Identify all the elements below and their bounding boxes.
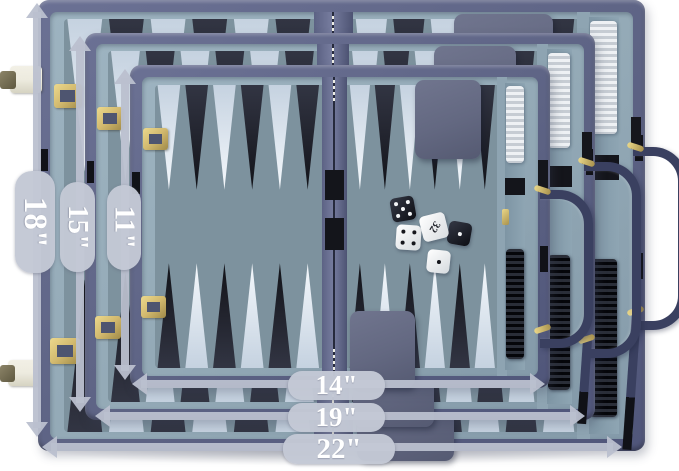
dimension-label-19-inch: 19": [288, 403, 385, 432]
die-white-4-pip-3: [400, 241, 404, 245]
small-right-bottom-point-4: [423, 263, 446, 368]
dimension-label-text: 22": [316, 435, 361, 464]
die-black-5-pip-2: [405, 200, 410, 205]
small-hinge-stitch-top: [333, 80, 335, 104]
exterior-latch-top-tip-icon: [0, 71, 16, 89]
small-left-top-point-5: [267, 85, 293, 190]
dimension-label-11-inch: 11": [107, 185, 141, 270]
die-white-4-pip-1: [401, 229, 405, 233]
die-white-4-pip-2: [413, 230, 417, 234]
dimension-label-text: 15": [63, 204, 92, 249]
die-white-4: [395, 224, 422, 251]
small-hinge-strap-1: [325, 170, 345, 200]
dimension-label-18-inch: 18": [15, 171, 55, 273]
small-left-bottom-point-5: [267, 263, 293, 368]
small-black-checkers-stack: [506, 249, 524, 358]
doubling-cube-value: 32: [426, 219, 442, 235]
dimension-label-text: 19": [316, 404, 358, 431]
small-right-bottom-point-5: [448, 263, 471, 368]
dimension-label-14-inch: 14": [288, 371, 385, 400]
small-left-bottom-point-2: [184, 263, 210, 368]
die-black-1: [446, 220, 473, 247]
die-white-4-pip-4: [412, 242, 416, 246]
small-left-bottom-point-4: [239, 263, 265, 368]
small-compartment-clasp-icon: [502, 209, 509, 225]
backgammon-sets-product-photo: 32: [0, 0, 679, 471]
die-black-5-pip-3: [401, 207, 406, 212]
dimension-label-15-inch: 15": [60, 182, 95, 272]
die-black-5: [389, 195, 417, 223]
medium-latch-buckle-hole: [101, 322, 115, 333]
small-hinge-strap-2: [325, 218, 345, 251]
small-left-bottom-point-3: [212, 263, 238, 368]
small-case: [130, 65, 550, 388]
small-right-top-point-1: [348, 85, 371, 190]
small-right-top-point-2: [373, 85, 396, 190]
small-hinge: [322, 77, 348, 376]
small-left-top-point-2: [184, 85, 210, 190]
small-latch-buckle-2: [141, 296, 166, 318]
small-dice-cup-top: [415, 80, 481, 159]
small-left-top-point-6: [295, 85, 321, 190]
die-black-1-pip-1: [457, 231, 462, 236]
dimension-label-text: 11": [110, 206, 139, 250]
dimension-label-text: 14": [316, 372, 358, 399]
small-compartment: [505, 83, 525, 370]
arrow-head-down-icon: [69, 397, 91, 412]
arrow-head-right-icon: [570, 405, 585, 427]
small-left-top-point-3: [212, 85, 238, 190]
small-latch-buckle-hole: [147, 302, 161, 313]
arrow-head-right-icon: [607, 436, 622, 458]
die-white-1-pip-1: [436, 259, 440, 263]
small-compartment-strap: [505, 178, 525, 195]
arrow-head-right-icon: [530, 373, 545, 395]
small-white-checkers-stack: [506, 86, 524, 163]
die-white-1: [426, 249, 451, 274]
scene: 32: [0, 0, 679, 471]
die-black-5-pip-5: [407, 211, 412, 216]
small-right-bottom-point-6: [473, 263, 496, 368]
small-left-bottom-point-6: [295, 263, 321, 368]
die-black-5-pip-4: [396, 213, 401, 218]
small-latch-buckle-hole: [149, 134, 163, 145]
arrow-head-down-icon: [26, 422, 48, 437]
small-left-top-point-4: [239, 85, 265, 190]
die-black-5-pip-1: [394, 202, 399, 207]
dimension-label-text: 18": [19, 196, 52, 247]
medium-white-checkers-stack: [548, 53, 570, 149]
exterior-latch-bottom-tip-icon: [0, 365, 15, 382]
small-latch-buckle-1: [143, 128, 168, 150]
medium-compartment-strap: [547, 166, 573, 187]
dimension-label-22-inch: 22": [283, 434, 395, 464]
